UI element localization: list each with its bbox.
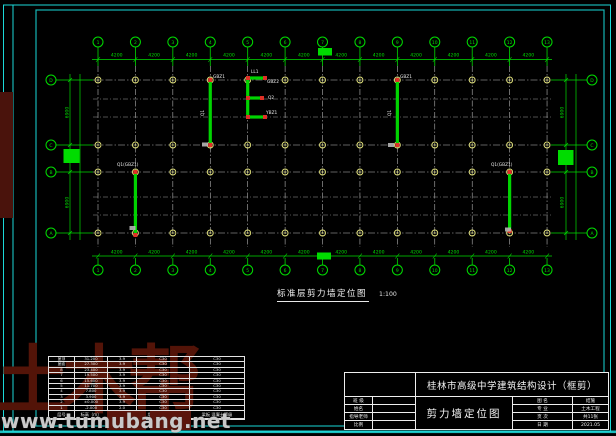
- column-marker-dot: [284, 79, 286, 81]
- field-label: 比例: [345, 421, 373, 429]
- axis-bubble-label: 4: [209, 40, 212, 46]
- axis-bubble-label: 13: [544, 40, 550, 46]
- grip-mark: [505, 228, 511, 232]
- field-value: 共11张: [573, 413, 608, 421]
- column-marker-dot: [172, 232, 174, 234]
- dim-text-bottom: 4200: [111, 250, 123, 256]
- wall-label: Q1: [387, 110, 393, 116]
- dim-text-right: 6900: [560, 107, 566, 119]
- dim-text-top: 4200: [261, 53, 273, 59]
- dim-text-top: 4200: [373, 53, 385, 59]
- field-value: [373, 413, 416, 421]
- wall-label: Q1(GBZ1): [491, 162, 513, 168]
- column-marker-dot: [322, 144, 324, 146]
- dim-text-bottom: 4200: [335, 250, 347, 256]
- axis-bubble-label: 7: [321, 268, 324, 274]
- column-marker-dot: [135, 144, 137, 146]
- column-marker-dot: [509, 144, 511, 146]
- column-marker-dot: [471, 144, 473, 146]
- axis-bubble-label: 10: [432, 268, 438, 274]
- axis-bubble-label: 4: [209, 268, 212, 274]
- axis-bubble-label: 1: [97, 268, 100, 274]
- column-marker-dot: [284, 232, 286, 234]
- column-marker-dot: [97, 79, 99, 81]
- column-marker-dot: [434, 144, 436, 146]
- axis-bubble-label: 11: [469, 268, 475, 274]
- axis-bubble-label: 12: [507, 40, 513, 46]
- axis-bubble-label: 8: [359, 40, 362, 46]
- axis-bubble-label: 6: [284, 268, 287, 274]
- wall-end-node: [133, 233, 137, 237]
- column-marker-dot: [359, 171, 361, 173]
- dim-text-bottom: 4200: [186, 250, 198, 256]
- dim-text-top: 4200: [111, 53, 123, 59]
- watermark-site-url: www.tumubang.net: [1, 409, 231, 433]
- field-label: 图 名: [513, 397, 573, 405]
- column-marker-dot: [284, 144, 286, 146]
- grip-mark: [388, 143, 394, 147]
- wall-label: Q1(GBZ1): [117, 162, 139, 168]
- dim-text-bottom: 4200: [223, 250, 235, 256]
- field-value: 结施: [573, 397, 608, 405]
- selected-dim-highlight: [318, 48, 332, 56]
- axis-bubble-label: A: [49, 231, 53, 237]
- field-label: 页 次: [513, 413, 573, 421]
- column-marker-dot: [172, 79, 174, 81]
- dim-text-bottom: 4200: [448, 250, 460, 256]
- selected-dim-highlight: [64, 149, 80, 163]
- axis-bubble-label: D: [590, 78, 594, 84]
- core-wall-arm: [248, 96, 262, 99]
- axis-bubble-label: 10: [432, 40, 438, 46]
- wall-end-node: [395, 143, 399, 147]
- column-marker-dot: [471, 232, 473, 234]
- column-marker-dot: [359, 79, 361, 81]
- axis-bubble-label: 9: [396, 268, 399, 274]
- dim-text-bottom: 4200: [261, 250, 273, 256]
- dim-text-right: 6900: [560, 197, 566, 209]
- wall-label: GBZ1: [400, 74, 412, 80]
- wall-end-node: [133, 170, 137, 174]
- dim-text-bottom: 4200: [522, 250, 534, 256]
- column-marker-dot: [284, 171, 286, 173]
- plan-caption-scale: 1:100: [379, 291, 397, 298]
- axis-bubble-label: A: [590, 231, 594, 237]
- field-value: [373, 397, 416, 405]
- dim-text-top: 4200: [410, 53, 422, 59]
- shear-wall: [209, 80, 212, 145]
- column-marker-dot: [471, 79, 473, 81]
- field-label: 日 期: [513, 421, 573, 429]
- axis-bubble-label: C: [49, 143, 52, 149]
- column-marker-dot: [359, 144, 361, 146]
- dim-text-left: 6900: [65, 197, 71, 209]
- core-wall-arm: [248, 115, 265, 118]
- column-marker-dot: [546, 79, 548, 81]
- axis-bubble-label: 3: [171, 268, 174, 274]
- wall-label: YBZ1: [265, 110, 278, 116]
- axis-bubble-label: C: [590, 143, 593, 149]
- title-block: 桂林市高级中学建筑结构设计（框剪） 剪力墙定位图班 级图 名结施姓名专 业土木工…: [344, 372, 609, 430]
- column-marker-dot: [97, 144, 99, 146]
- column-marker-dot: [247, 232, 249, 234]
- column-marker-dot: [97, 171, 99, 173]
- dim-text-top: 4200: [485, 53, 497, 59]
- wall-end-node: [246, 96, 250, 100]
- dim-text-bottom: 4200: [485, 250, 497, 256]
- selected-dim-highlight: [317, 253, 331, 260]
- dim-text-top: 4200: [335, 53, 347, 59]
- axis-bubble-label: 13: [544, 268, 550, 274]
- column-marker-dot: [172, 171, 174, 173]
- column-marker-dot: [434, 171, 436, 173]
- column-marker-dot: [97, 232, 99, 234]
- wall-end-node: [246, 76, 250, 80]
- axis-bubble-label: 2: [134, 40, 137, 46]
- column-marker-dot: [209, 232, 211, 234]
- axis-bubble-label: 5: [246, 40, 249, 46]
- dim-text-top: 4200: [448, 53, 460, 59]
- column-marker-dot: [172, 144, 174, 146]
- axis-bubble-label: 8: [359, 268, 362, 274]
- axis-bubble-label: 9: [396, 40, 399, 46]
- column-marker-dot: [359, 232, 361, 234]
- column-marker-dot: [471, 171, 473, 173]
- field-value: [373, 421, 416, 429]
- axis-bubble-label: D: [49, 78, 53, 84]
- title-block-grid: 剪力墙定位图班 级图 名结施姓名专 业土木工程指导老师页 次共11张比例日 期2…: [345, 397, 608, 429]
- dim-text-left: 6900: [65, 107, 71, 119]
- column-marker-dot: [397, 171, 399, 173]
- column-marker-dot: [322, 232, 324, 234]
- dim-text-top: 4200: [298, 53, 310, 59]
- wall-label: GBZ1: [213, 74, 225, 80]
- axis-bubble-label: 12: [507, 268, 513, 274]
- column-marker-dot: [322, 79, 324, 81]
- field-label: 专 业: [513, 405, 573, 413]
- wall-end-node: [508, 170, 512, 174]
- shear-wall: [396, 80, 399, 145]
- axis-bubble-label: 11: [469, 40, 475, 46]
- column-marker-dot: [135, 79, 137, 81]
- drawing-title: 剪力墙定位图: [416, 397, 513, 429]
- wall-end-node: [395, 78, 399, 82]
- dim-text-top: 4200: [522, 53, 534, 59]
- column-marker-dot: [209, 171, 211, 173]
- wall-label: LL1: [251, 69, 259, 75]
- axis-bubble-label: 3: [171, 40, 174, 46]
- dim-text-bottom: 4200: [410, 250, 422, 256]
- wall-label: Q2: [268, 95, 274, 101]
- dim-text-top: 4200: [223, 53, 235, 59]
- column-marker-dot: [397, 232, 399, 234]
- dim-text-top: 4200: [148, 53, 160, 59]
- column-marker-dot: [434, 232, 436, 234]
- axis-bubble-label: B: [49, 170, 52, 176]
- axis-bubble-label: 1: [97, 40, 100, 46]
- column-marker-dot: [322, 171, 324, 173]
- project-title: 桂林市高级中学建筑结构设计（框剪）: [416, 373, 608, 396]
- grip-mark: [130, 226, 136, 230]
- wall-end-node: [208, 78, 212, 82]
- field-value: [373, 405, 416, 413]
- field-value: 2021.05: [573, 421, 608, 429]
- dim-text-bottom: 4200: [373, 250, 385, 256]
- column-marker-dot: [247, 171, 249, 173]
- column-marker-dot: [247, 144, 249, 146]
- shear-wall: [508, 172, 511, 233]
- dim-text-top: 4200: [186, 53, 198, 59]
- wall-end-node: [246, 115, 250, 119]
- dim-text-bottom: 4200: [298, 250, 310, 256]
- title-block-logo-cell: [345, 373, 416, 396]
- column-marker-dot: [546, 232, 548, 234]
- column-marker-dot: [509, 79, 511, 81]
- column-marker-dot: [546, 144, 548, 146]
- wall-end-node: [260, 96, 264, 100]
- axis-bubble-label: B: [590, 170, 593, 176]
- watermark-strip: [0, 92, 13, 218]
- axis-bubble-label: 2: [134, 268, 137, 274]
- wall-end-node: [208, 143, 212, 147]
- grip-mark: [202, 143, 208, 147]
- wall-label: Q1: [200, 110, 206, 116]
- title-block-top-row: 桂林市高级中学建筑结构设计（框剪）: [345, 373, 608, 397]
- plan-caption: 标准层剪力墙定位图1:100: [277, 281, 397, 300]
- field-value: 土木工程: [573, 405, 608, 413]
- axis-bubble-label: 6: [284, 40, 287, 46]
- cad-preview-image: { "frame": { "border_color": "#1bd9d9" }…: [0, 0, 616, 436]
- dim-text-bottom: 4200: [148, 250, 160, 256]
- field-label: 班 级: [345, 397, 373, 405]
- axis-bubble-label: 5: [246, 268, 249, 274]
- column-marker-dot: [434, 79, 436, 81]
- core-wall-arm: [248, 76, 265, 79]
- axis-bubble-label: 7: [321, 40, 324, 46]
- plan-caption-title: 标准层剪力墙定位图: [277, 289, 369, 302]
- field-label: 姓名: [345, 405, 373, 413]
- field-label: 指导老师: [345, 413, 373, 421]
- wall-label: GBZ2: [267, 79, 279, 85]
- shear-wall: [134, 172, 137, 235]
- column-marker-dot: [546, 171, 548, 173]
